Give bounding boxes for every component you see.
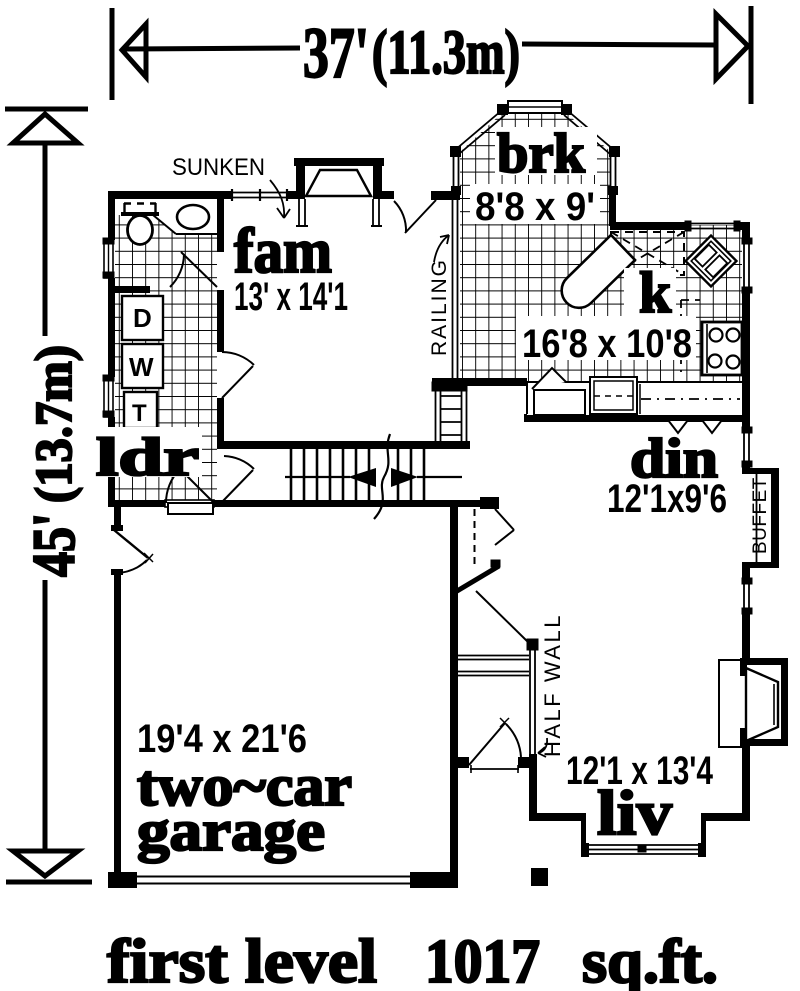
svg-text:sq.ft.: sq.ft. <box>582 928 718 991</box>
svg-text:ldr: ldr <box>96 427 199 487</box>
svg-text:1017: 1017 <box>425 928 540 991</box>
svg-text:W: W <box>129 352 154 382</box>
svg-text:(13.7m): (13.7m) <box>26 345 83 503</box>
svg-text:HALF WALL: HALF WALL <box>540 613 565 757</box>
svg-text:D: D <box>133 303 152 333</box>
svg-text:37': 37' <box>303 13 369 93</box>
svg-text:19'4 x 21'6: 19'4 x 21'6 <box>137 717 307 761</box>
svg-text:first level: first level <box>107 928 377 991</box>
svg-text:12'1x9'6: 12'1x9'6 <box>607 477 727 521</box>
svg-text:garage: garage <box>137 798 325 863</box>
svg-text:16'8 x 10'8: 16'8 x 10'8 <box>522 322 692 366</box>
svg-text:(11.3m): (11.3m) <box>372 19 520 87</box>
svg-text:T: T <box>132 400 147 427</box>
svg-text:SUNKEN: SUNKEN <box>172 154 265 181</box>
svg-text:BUFFET: BUFFET <box>750 477 771 554</box>
svg-text:k: k <box>639 260 672 325</box>
svg-text:brk: brk <box>497 123 586 185</box>
svg-text:45': 45' <box>21 513 87 577</box>
svg-text:13' x 14'1: 13' x 14'1 <box>234 275 348 319</box>
svg-text:8'8 x 9': 8'8 x 9' <box>475 185 595 229</box>
svg-text:12'1 x 13'4: 12'1 x 13'4 <box>566 749 714 793</box>
svg-text:RAILING: RAILING <box>428 258 451 356</box>
